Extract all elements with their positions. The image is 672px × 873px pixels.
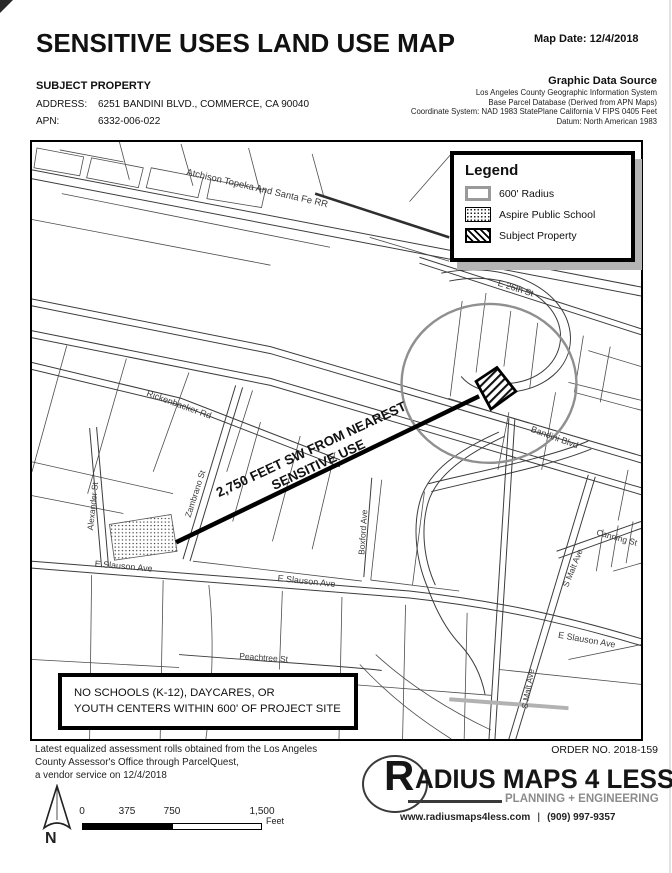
data-source-line: Coordinate System: NAD 1983 StatePlane C…: [297, 107, 657, 117]
scale-tick-375: 375: [119, 806, 136, 817]
street-label-peachtree: Peachtree St: [239, 651, 289, 664]
logo-name: ADIUS MAPS 4 LESS: [415, 764, 672, 795]
distance-line: [176, 396, 479, 542]
note-line2: YOUTH CENTERS WITHIN 600' OF PROJECT SIT…: [74, 702, 346, 718]
assessment-disclaimer: Latest equalized assessment rolls obtain…: [35, 744, 317, 782]
street-label-malt-north: S Malt Ave: [560, 547, 584, 588]
school-swatch: [465, 207, 491, 222]
street-label-rickenbacker: Rickenbacker Rd: [145, 388, 212, 421]
logo-phone: (909) 997-9357: [547, 812, 615, 823]
apn-label: APN:: [36, 116, 59, 127]
legend-item-radius: 600' Radius: [465, 186, 623, 201]
north-arrow: N: [36, 784, 80, 854]
railroad-thick-segment: [315, 194, 449, 238]
logo-tagline: PLANNING + ENGINEERING: [505, 793, 659, 805]
note-line1: NO SCHOOLS (K-12), DAYCARES, OR: [74, 686, 346, 702]
logo-separator: |: [537, 812, 540, 823]
logo-website: www.radiusmaps4less.com: [400, 812, 530, 823]
scanned-map-page: { "header": { "title": "SENSITIVE USES L…: [0, 0, 672, 873]
north-label: N: [45, 830, 57, 848]
subject-property-heading: SUBJECT PROPERTY: [36, 80, 151, 92]
data-source-line: Base Parcel Database (Derived from APN M…: [297, 98, 657, 108]
subject-property-parcel: [476, 367, 516, 409]
street-label-slauson-west: E Slauson Ave: [94, 559, 153, 574]
legend-title: Legend: [465, 162, 623, 179]
page-title: SENSITIVE USES LAND USE MAP: [36, 28, 455, 59]
map-area: Atchison Topeka And Santa Fe RR E 26th S…: [30, 140, 643, 741]
address-label: ADDRESS:: [36, 99, 87, 110]
distance-annotation-line1: 2,750 FEET SW FROM NEAREST: [214, 398, 409, 500]
legend-item-subject: Subject Property: [465, 228, 623, 243]
legend-item-school: Aspire Public School: [465, 207, 623, 222]
scan-edge-shade: [669, 0, 671, 873]
no-schools-note: NO SCHOOLS (K-12), DAYCARES, OR YOUTH CE…: [58, 673, 358, 730]
data-source-line: Datum: North American 1983: [297, 117, 657, 127]
legend-item-label: 600' Radius: [499, 188, 554, 200]
street-label-bandini: Bandini Blvd: [530, 424, 580, 450]
legend: Legend 600' Radius Aspire Public School …: [450, 151, 635, 262]
data-source-line: Los Angeles County Geographic Informatio…: [297, 88, 657, 98]
logo-contact: www.radiusmaps4less.com|(909) 997-9357: [400, 812, 615, 823]
scale-bar: 0 375 750 1,500 Feet: [76, 798, 296, 840]
street-label-slauson-east: E Slauson Ave: [557, 630, 616, 650]
shaded-road-segment: [449, 699, 568, 708]
scale-tick-750: 750: [164, 806, 181, 817]
logo-underline: [408, 800, 502, 803]
north-arrow-glyph: [36, 784, 80, 832]
scale-tick-0: 0: [79, 806, 85, 817]
radius-maps-logo: R ADIUS MAPS 4 LESS PLANNING + ENGINEERI…: [360, 750, 660, 830]
subject-swatch: [465, 228, 491, 243]
school-parcel: [109, 515, 177, 561]
street-label-boxford: Boxford Ave: [356, 509, 369, 555]
street-label-malt-south: S Malt Ave: [519, 668, 536, 710]
street-label-zambrano: Zambrano St: [183, 468, 208, 518]
address-value: 6251 BANDINI BLVD., COMMERCE, CA 90040: [98, 99, 309, 110]
scan-corner-artifact: [0, 0, 13, 13]
map-date: Map Date: 12/4/2018: [534, 33, 639, 45]
street-label-railroad: Atchison Topeka And Santa Fe RR: [186, 166, 330, 209]
apn-value: 6332-006-022: [98, 116, 160, 127]
scale-unit: Feet: [266, 816, 284, 826]
disclaimer-line3: a vendor service on 12/4/2018: [35, 770, 317, 783]
street-label-slauson-mid: E Slauson Ave: [277, 573, 336, 589]
radius-swatch: [465, 186, 491, 201]
scale-bar-empty: [172, 823, 262, 830]
disclaimer-line2: County Assessor's Office through ParcelQ…: [35, 757, 317, 770]
scale-bar-filled: [82, 823, 172, 830]
disclaimer-line1: Latest equalized assessment rolls obtain…: [35, 744, 317, 757]
street-label-e26th: E 26th St: [497, 278, 536, 299]
graphic-data-source: Graphic Data Source Los Angeles County G…: [297, 75, 657, 126]
logo-initial: R: [384, 752, 414, 800]
legend-item-label: Subject Property: [499, 230, 577, 242]
legend-item-label: Aspire Public School: [499, 209, 595, 221]
graphic-data-source-heading: Graphic Data Source: [297, 75, 657, 87]
